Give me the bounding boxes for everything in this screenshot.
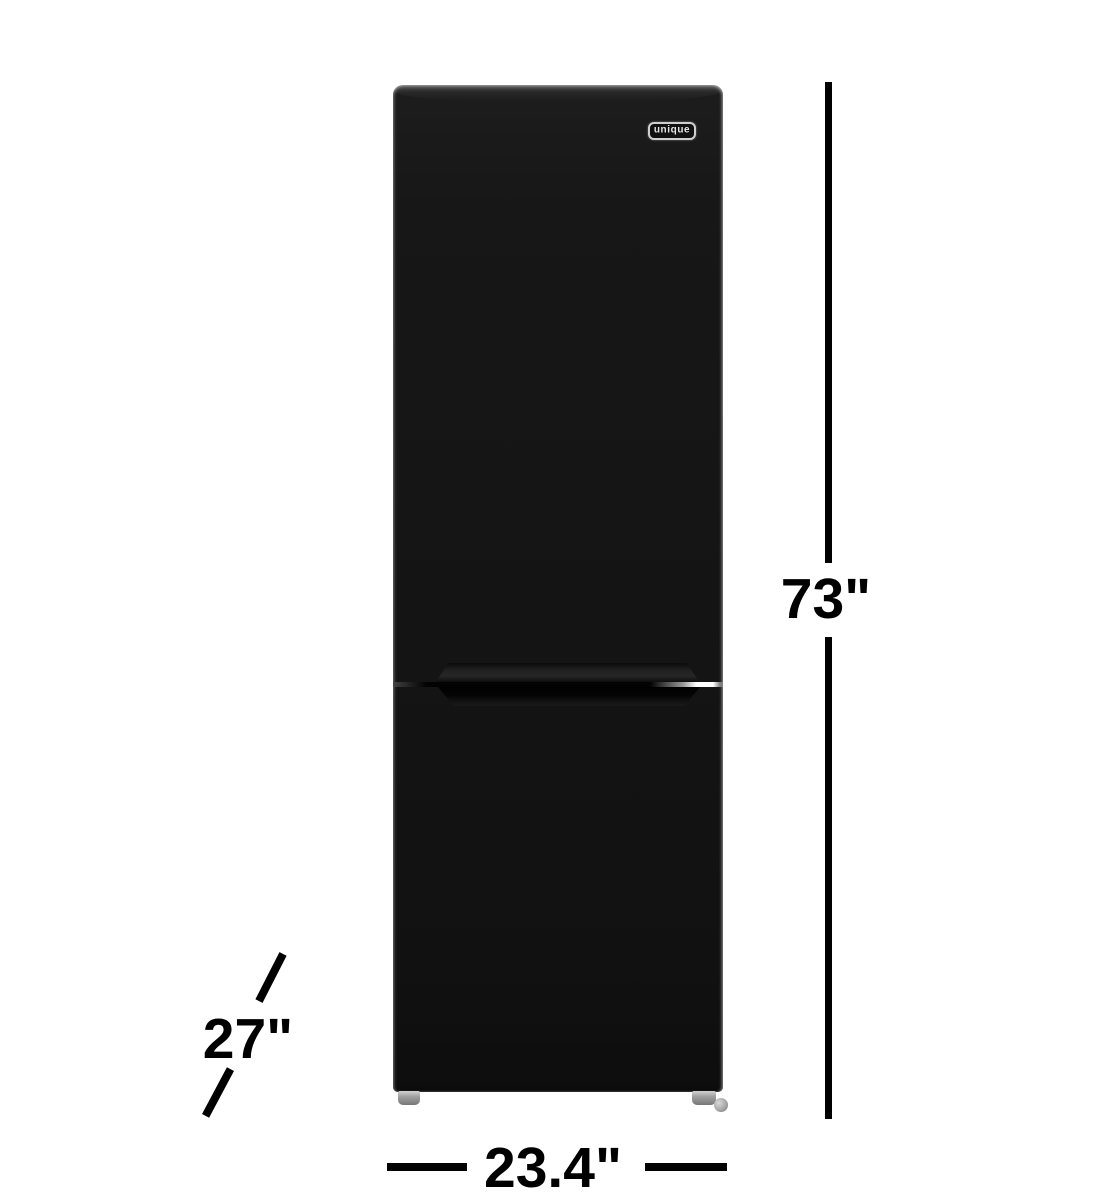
fridge-top-edge-highlight (395, 85, 721, 101)
width-dimension-label: 23.4" (473, 1139, 633, 1197)
fridge-body (393, 85, 723, 1092)
width-dimension-line-left-segment (387, 1163, 467, 1171)
lower-door-handle-recess (438, 687, 700, 706)
depth-dimension-line-lower-segment (202, 1067, 234, 1118)
right-leveling-foot (692, 1091, 716, 1105)
door-gap-line (393, 682, 723, 687)
depth-dimension-line-upper-segment (255, 952, 286, 1003)
depth-dimension-label: 27" (198, 1010, 298, 1068)
upper-door-handle-recess (435, 663, 700, 683)
height-dimension-label: 73" (770, 570, 882, 628)
refrigerator-image: unique (393, 85, 723, 1092)
height-dimension-line-upper-segment (825, 82, 832, 563)
product-dimension-diagram: unique 73" 23.4" 27" (0, 0, 1113, 1200)
height-dimension-line-lower-segment (825, 637, 832, 1119)
brand-logo-badge: unique (648, 122, 696, 140)
left-leveling-foot (398, 1091, 420, 1105)
brand-logo-text: unique (654, 126, 690, 136)
width-dimension-line-right-segment (645, 1163, 727, 1171)
right-roller-wheel (714, 1098, 728, 1112)
